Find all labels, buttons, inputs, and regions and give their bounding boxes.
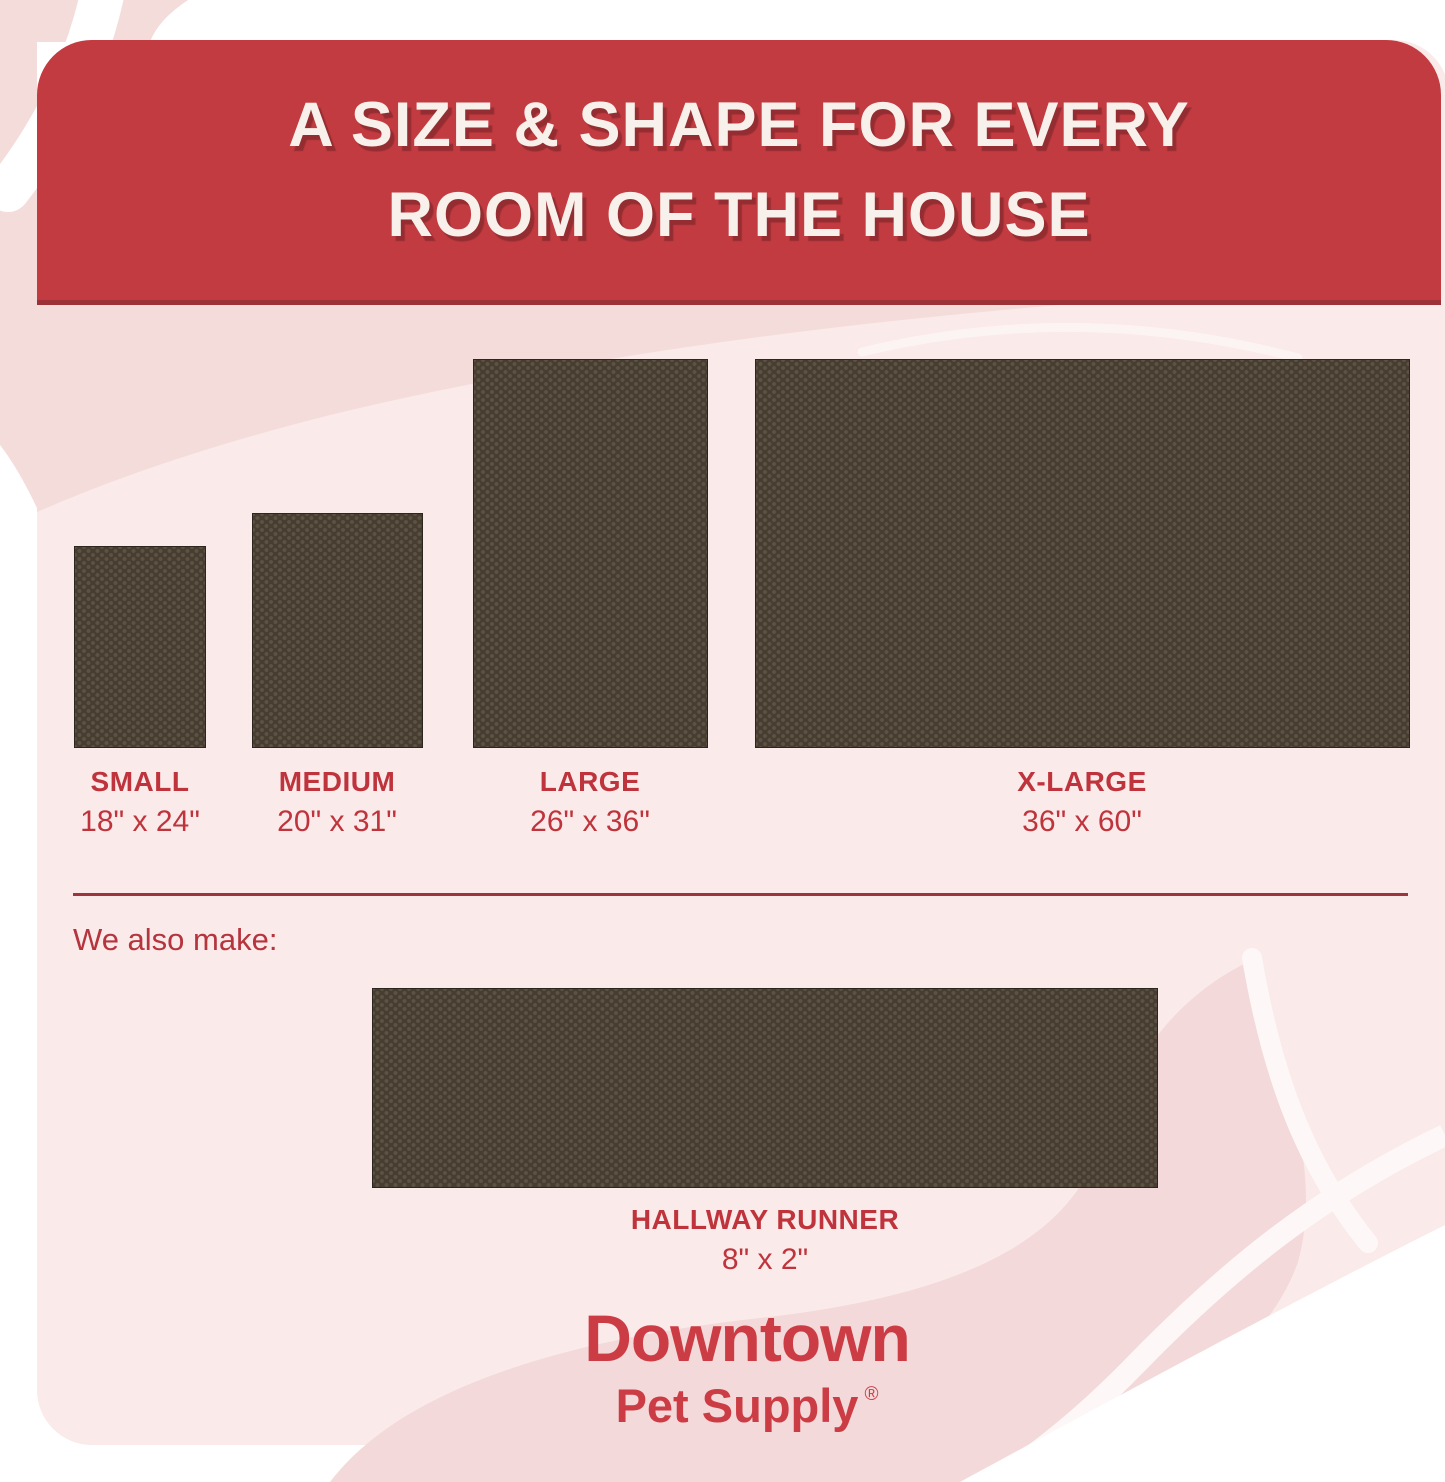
infographic-canvas: A SIZE & SHAPE FOR EVERY ROOM OF THE HOU… <box>0 0 1445 1482</box>
size-name: HALLWAY RUNNER <box>605 1204 925 1236</box>
section-divider <box>73 893 1408 896</box>
brand-name: Downtown <box>397 1300 1097 1376</box>
rug-swatch-small <box>74 546 206 748</box>
brand-subtitle: Pet Supply® <box>397 1378 1097 1433</box>
page-title-line-2: ROOM OF THE HOUSE <box>387 170 1090 260</box>
size-label-x-large: X-LARGE 36" x 60" <box>922 766 1242 839</box>
size-name: X-LARGE <box>922 766 1242 798</box>
size-dimensions: 26" x 36" <box>430 805 750 839</box>
size-label-large: LARGE 26" x 36" <box>430 766 750 839</box>
size-dimensions: 8" x 2" <box>605 1243 925 1277</box>
brand-logo: Downtown Pet Supply® <box>397 1300 1097 1433</box>
rug-swatch-hallway-runner <box>372 988 1158 1188</box>
brand-subtitle-text: Pet Supply <box>616 1379 859 1432</box>
page-title-line-1: A SIZE & SHAPE FOR EVERY <box>288 80 1189 170</box>
size-dimensions: 36" x 60" <box>922 805 1242 839</box>
rug-swatch-large <box>473 359 708 748</box>
header-banner: A SIZE & SHAPE FOR EVERY ROOM OF THE HOU… <box>37 40 1441 305</box>
also-make-label: We also make: <box>73 922 277 958</box>
rug-swatch-medium <box>252 513 423 748</box>
size-label-hallway-runner: HALLWAY RUNNER 8" x 2" <box>605 1204 925 1277</box>
rug-swatch-x-large <box>755 359 1410 748</box>
registered-mark: ® <box>864 1384 878 1405</box>
size-name: LARGE <box>430 766 750 798</box>
